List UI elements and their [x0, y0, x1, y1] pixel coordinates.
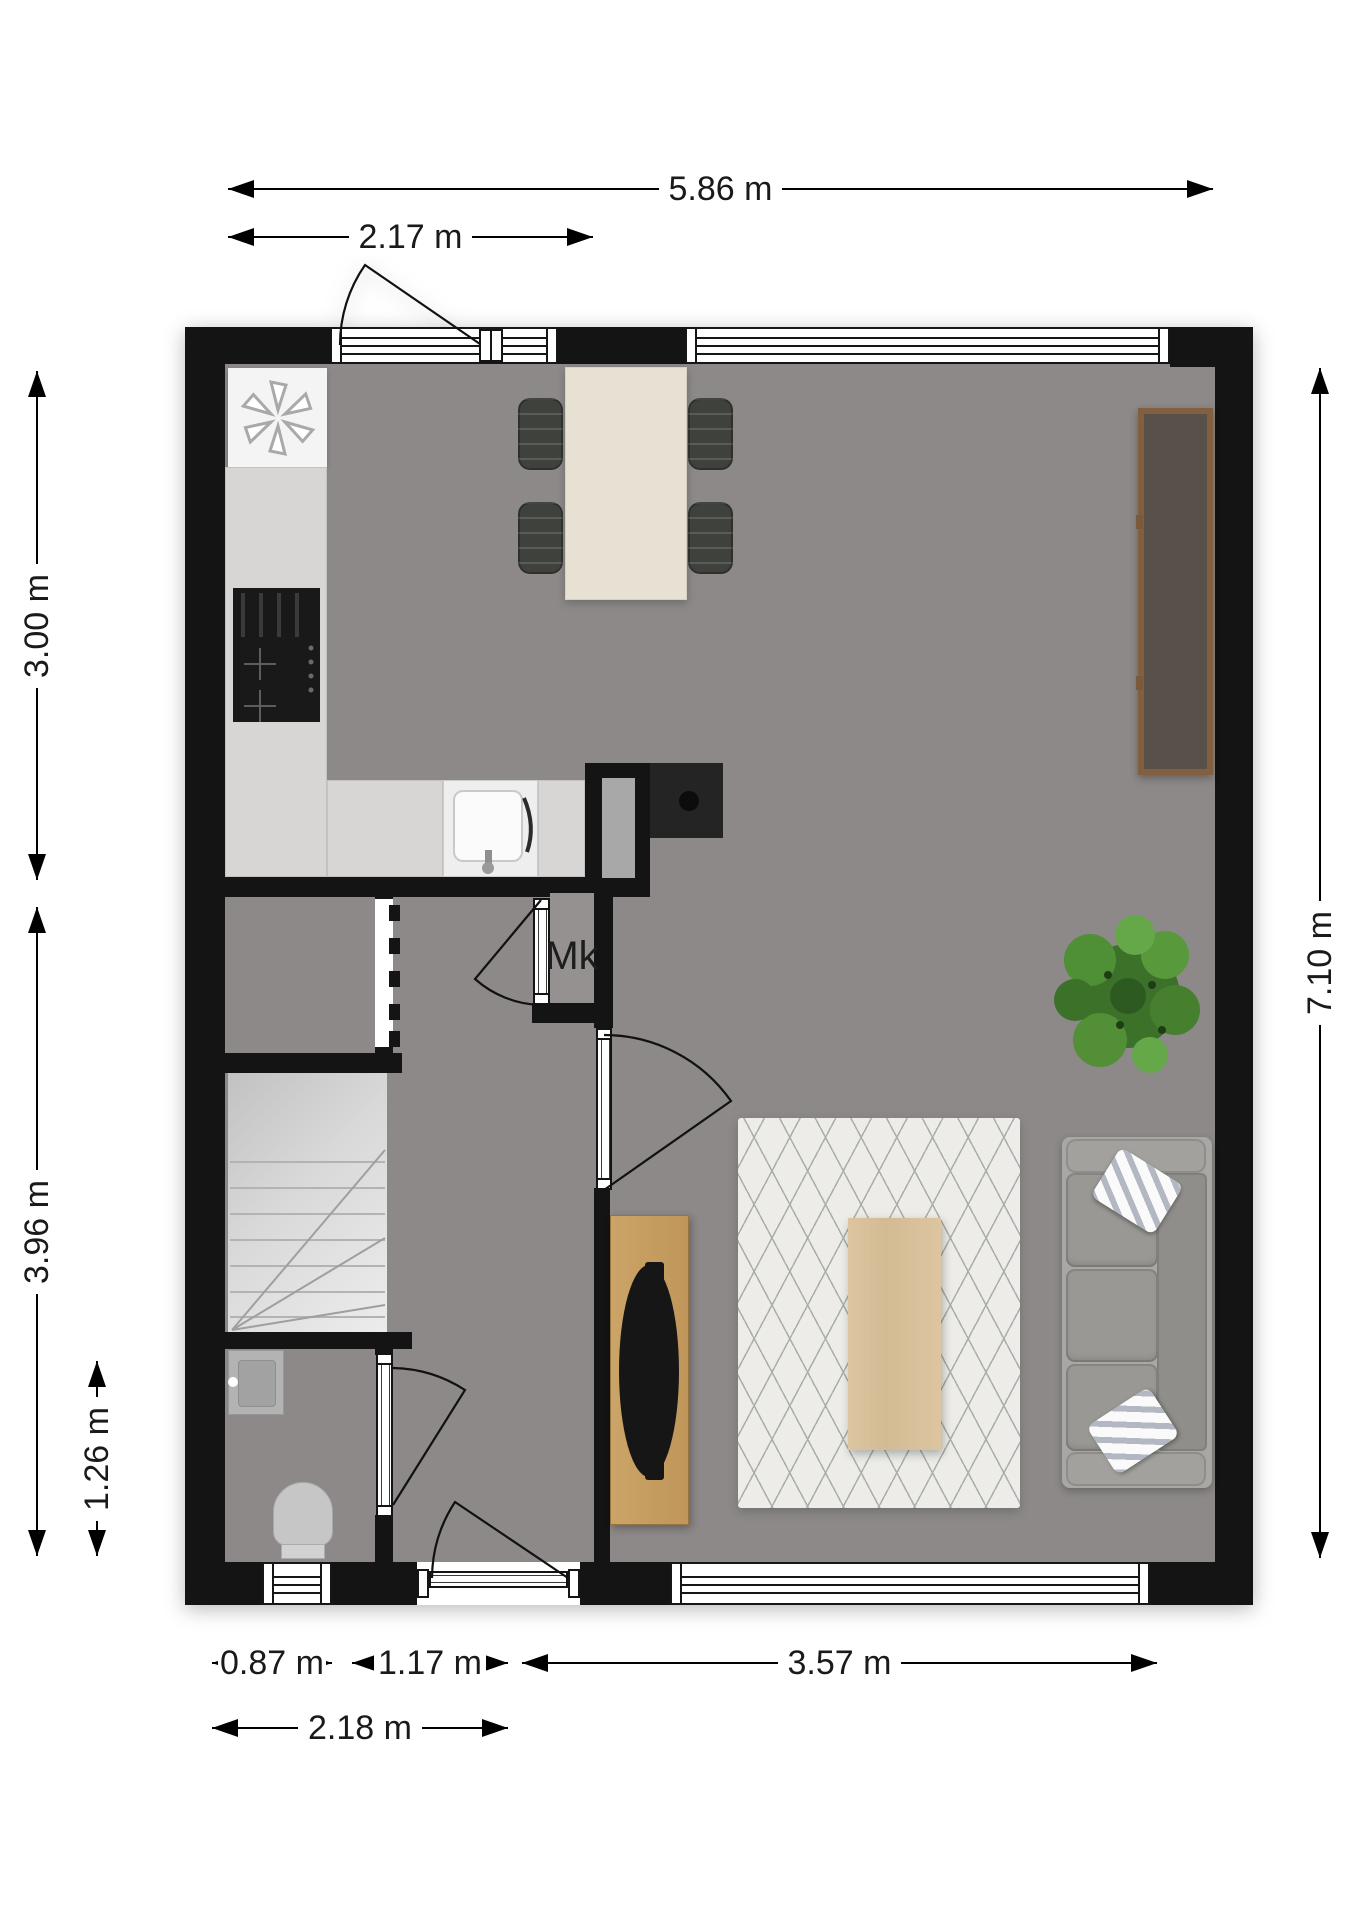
- dimension-left-1: 3.00 m: [20, 371, 54, 880]
- sideboard: [1138, 408, 1213, 775]
- dining-chair: [688, 502, 733, 574]
- floorplan-canvas: Mk: [0, 0, 1358, 1920]
- wall-toilet-stub-top: [375, 1332, 393, 1355]
- wall-mk-bottom: [532, 1003, 613, 1023]
- wall-top-pier: [558, 327, 685, 364]
- dining-chair: [688, 398, 733, 470]
- sink-basin: [453, 790, 523, 862]
- toilet-bowl: [273, 1482, 333, 1546]
- partition-dash: [389, 1031, 400, 1047]
- kitchen-counter-bottom: [327, 780, 443, 877]
- stove: [233, 588, 320, 722]
- wall-right: [1215, 327, 1253, 1605]
- wall-stairs-top: [225, 1053, 402, 1073]
- window-living: [670, 1562, 1150, 1605]
- sofa-seat: [1066, 1269, 1158, 1362]
- window-top-left: [330, 327, 558, 364]
- dimension-top-2: 2.17 m: [228, 220, 593, 254]
- wall-top-left: [185, 327, 330, 364]
- shaft-niche: [602, 778, 635, 878]
- wall-bottom-right-corner: [1150, 1562, 1253, 1605]
- dimension-bottom-1: 0.87 m: [212, 1646, 332, 1680]
- floor-plan: Mk: [0, 0, 1358, 1920]
- dimension-label: 0.87 m: [218, 1646, 326, 1680]
- wall-top-right: [1170, 327, 1253, 367]
- living-room-door: [596, 1028, 612, 1190]
- dimension-label: 3.96 m: [20, 1170, 54, 1294]
- dining-chair: [518, 502, 563, 574]
- kitchen-dark-cabinet: [650, 763, 723, 838]
- wall-bottom-block: [332, 1562, 417, 1605]
- wall-bottom-junction: [580, 1562, 670, 1605]
- toilet-sink-basin: [238, 1360, 276, 1407]
- kitchen-counter-piece: [538, 780, 585, 877]
- fridge-vent-unit: [228, 368, 327, 467]
- entry-door-leaf: [429, 1571, 568, 1588]
- sideboard-handle: [1136, 515, 1143, 529]
- dimension-bottom-2: 1.17 m: [352, 1646, 508, 1680]
- top-door-leaf-symbol: [479, 329, 503, 362]
- dimension-label: 3.00 m: [20, 564, 54, 688]
- dimension-label: 2.17 m: [349, 220, 473, 254]
- dining-chair: [518, 398, 563, 470]
- partition-dash: [389, 1004, 400, 1020]
- toilet-door: [376, 1353, 393, 1517]
- sideboard-handle: [1136, 676, 1143, 690]
- dimension-label: 7.10 m: [1303, 901, 1337, 1025]
- window-top-right: [685, 327, 1170, 364]
- partition-dash: [389, 971, 400, 987]
- window-mullion: [546, 327, 558, 364]
- stairs: [228, 1073, 387, 1332]
- wall-toilet-stub-bottom: [375, 1515, 393, 1567]
- wall-left: [185, 327, 225, 1605]
- dimension-bottom-3: 3.57 m: [522, 1646, 1157, 1680]
- dimension-label: 1.26 m: [80, 1397, 114, 1521]
- dimension-left-3: 1.26 m: [80, 1361, 114, 1556]
- dimension-top-1: 5.86 m: [228, 172, 1213, 206]
- dimension-right-1: 7.10 m: [1303, 368, 1337, 1558]
- dimension-label: 3.57 m: [778, 1646, 902, 1680]
- dimension-label: 1.17 m: [374, 1646, 486, 1680]
- window-toilet: [262, 1562, 332, 1605]
- partition-dash: [389, 905, 400, 921]
- dimension-label: 2.18 m: [298, 1711, 422, 1745]
- wall-kitchen-bottom: [225, 877, 585, 897]
- dimension-left-2: 3.96 m: [20, 907, 54, 1556]
- tv-stand: [610, 1215, 689, 1525]
- dimension-bottom-4: 2.18 m: [212, 1711, 508, 1745]
- partition-dash: [389, 938, 400, 954]
- wall-bottom-left-corner: [185, 1562, 262, 1605]
- window-mullion: [330, 327, 342, 364]
- toilet-seat: [281, 1544, 325, 1559]
- meter-cupboard-label: Mk: [541, 934, 603, 979]
- coffee-table: [848, 1218, 941, 1450]
- dimension-label: 5.86 m: [659, 172, 783, 206]
- wall-tv: [594, 1188, 610, 1567]
- window-mullion: [1158, 327, 1170, 364]
- window-mullion: [685, 327, 697, 364]
- dining-table: [565, 367, 687, 600]
- entry-door-opening: [417, 1562, 580, 1605]
